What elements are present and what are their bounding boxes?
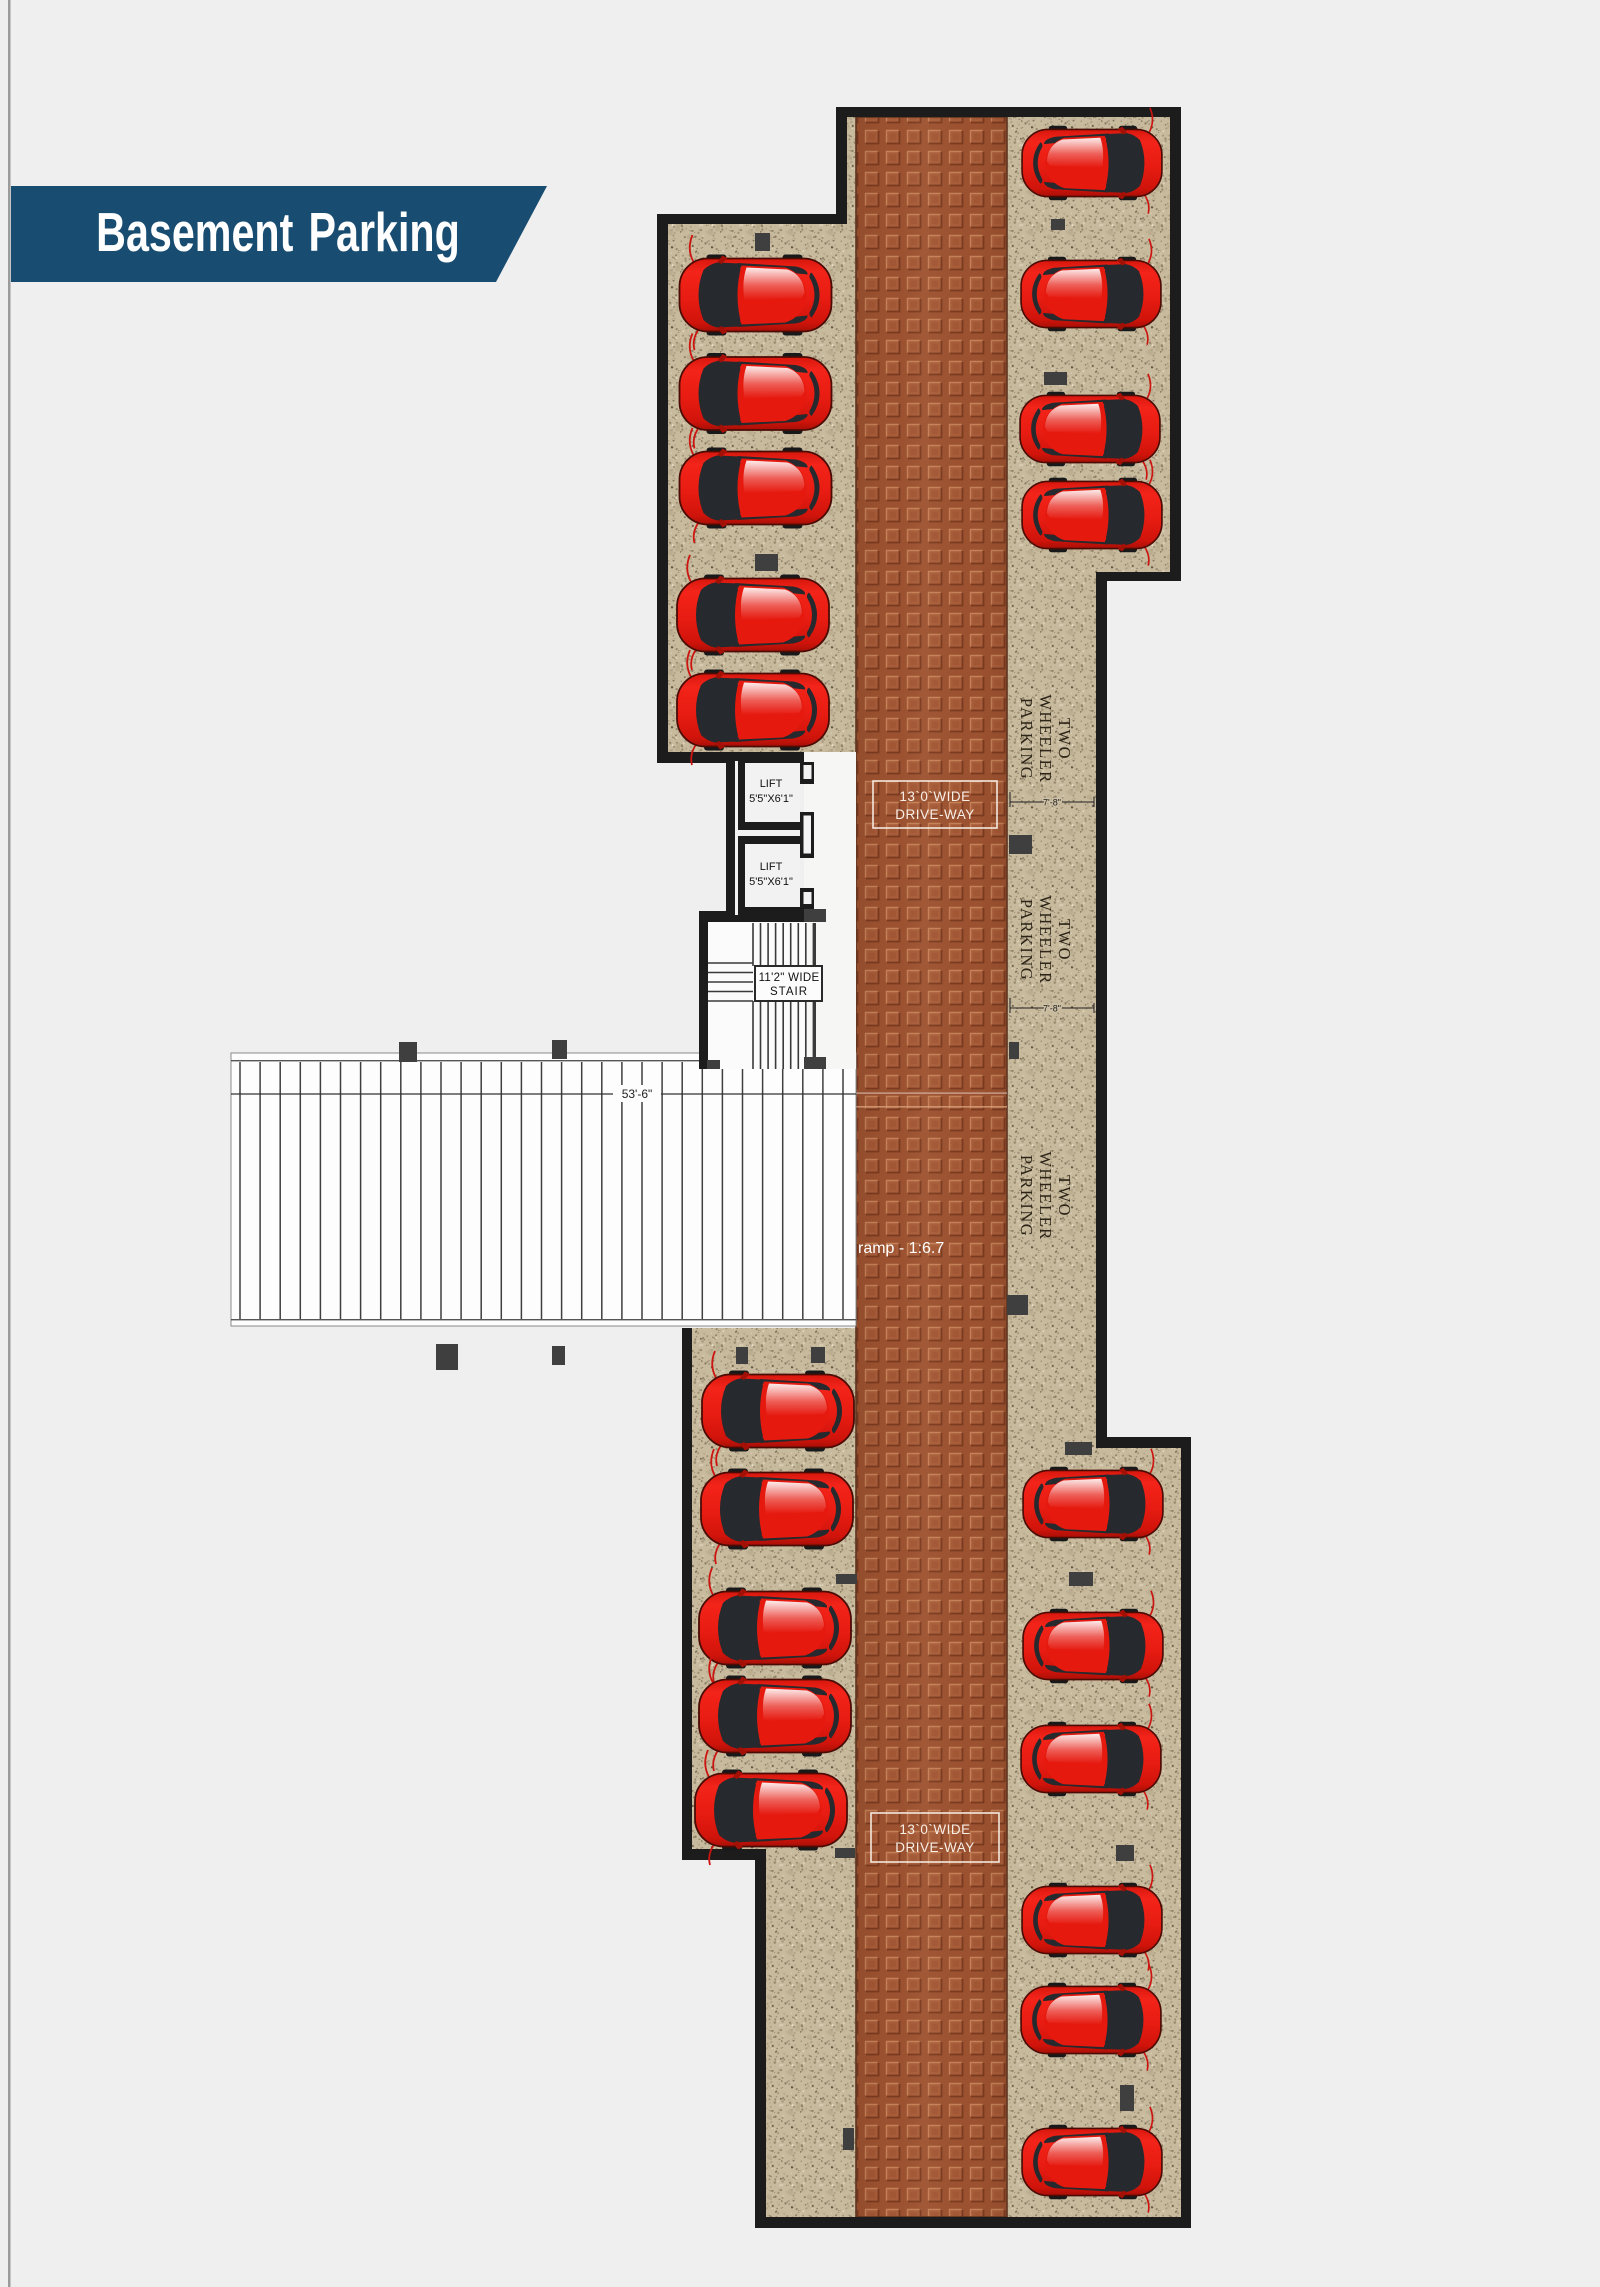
svg-text:5'5"X6'1": 5'5"X6'1" [749,876,793,888]
svg-text:ramp - 1:6.7: ramp - 1:6.7 [858,1240,944,1257]
svg-text:TWO: TWO [1055,919,1074,961]
svg-text:7'-8": 7'-8" [1043,798,1061,808]
svg-text:PARKING: PARKING [1017,899,1036,981]
svg-text:STAIR: STAIR [770,986,808,998]
svg-text:13`0`WIDE: 13`0`WIDE [899,1822,970,1837]
svg-text:PARKING: PARKING [1017,1155,1036,1237]
svg-text:13`0`WIDE: 13`0`WIDE [899,789,970,804]
svg-text:11'2" WIDE: 11'2" WIDE [759,972,820,984]
svg-text:DRIVE-WAY: DRIVE-WAY [895,807,975,822]
svg-text:PARKING: PARKING [1017,698,1036,780]
svg-text:LIFT: LIFT [760,861,783,873]
svg-text:DRIVE-WAY: DRIVE-WAY [895,1840,975,1855]
svg-text:WHEELER: WHEELER [1036,1151,1055,1240]
svg-text:7'-8": 7'-8" [1043,1004,1061,1014]
svg-text:LIFT: LIFT [760,778,783,790]
svg-text:Basement Parking: Basement Parking [96,202,460,263]
svg-text:5'5"X6'1": 5'5"X6'1" [749,793,793,805]
svg-text:WHEELER: WHEELER [1036,895,1055,984]
svg-text:TWO: TWO [1055,1175,1074,1217]
svg-text:53'-6": 53'-6" [622,1087,653,1101]
svg-text:WHEELER: WHEELER [1036,694,1055,783]
svg-text:TWO: TWO [1055,718,1074,760]
